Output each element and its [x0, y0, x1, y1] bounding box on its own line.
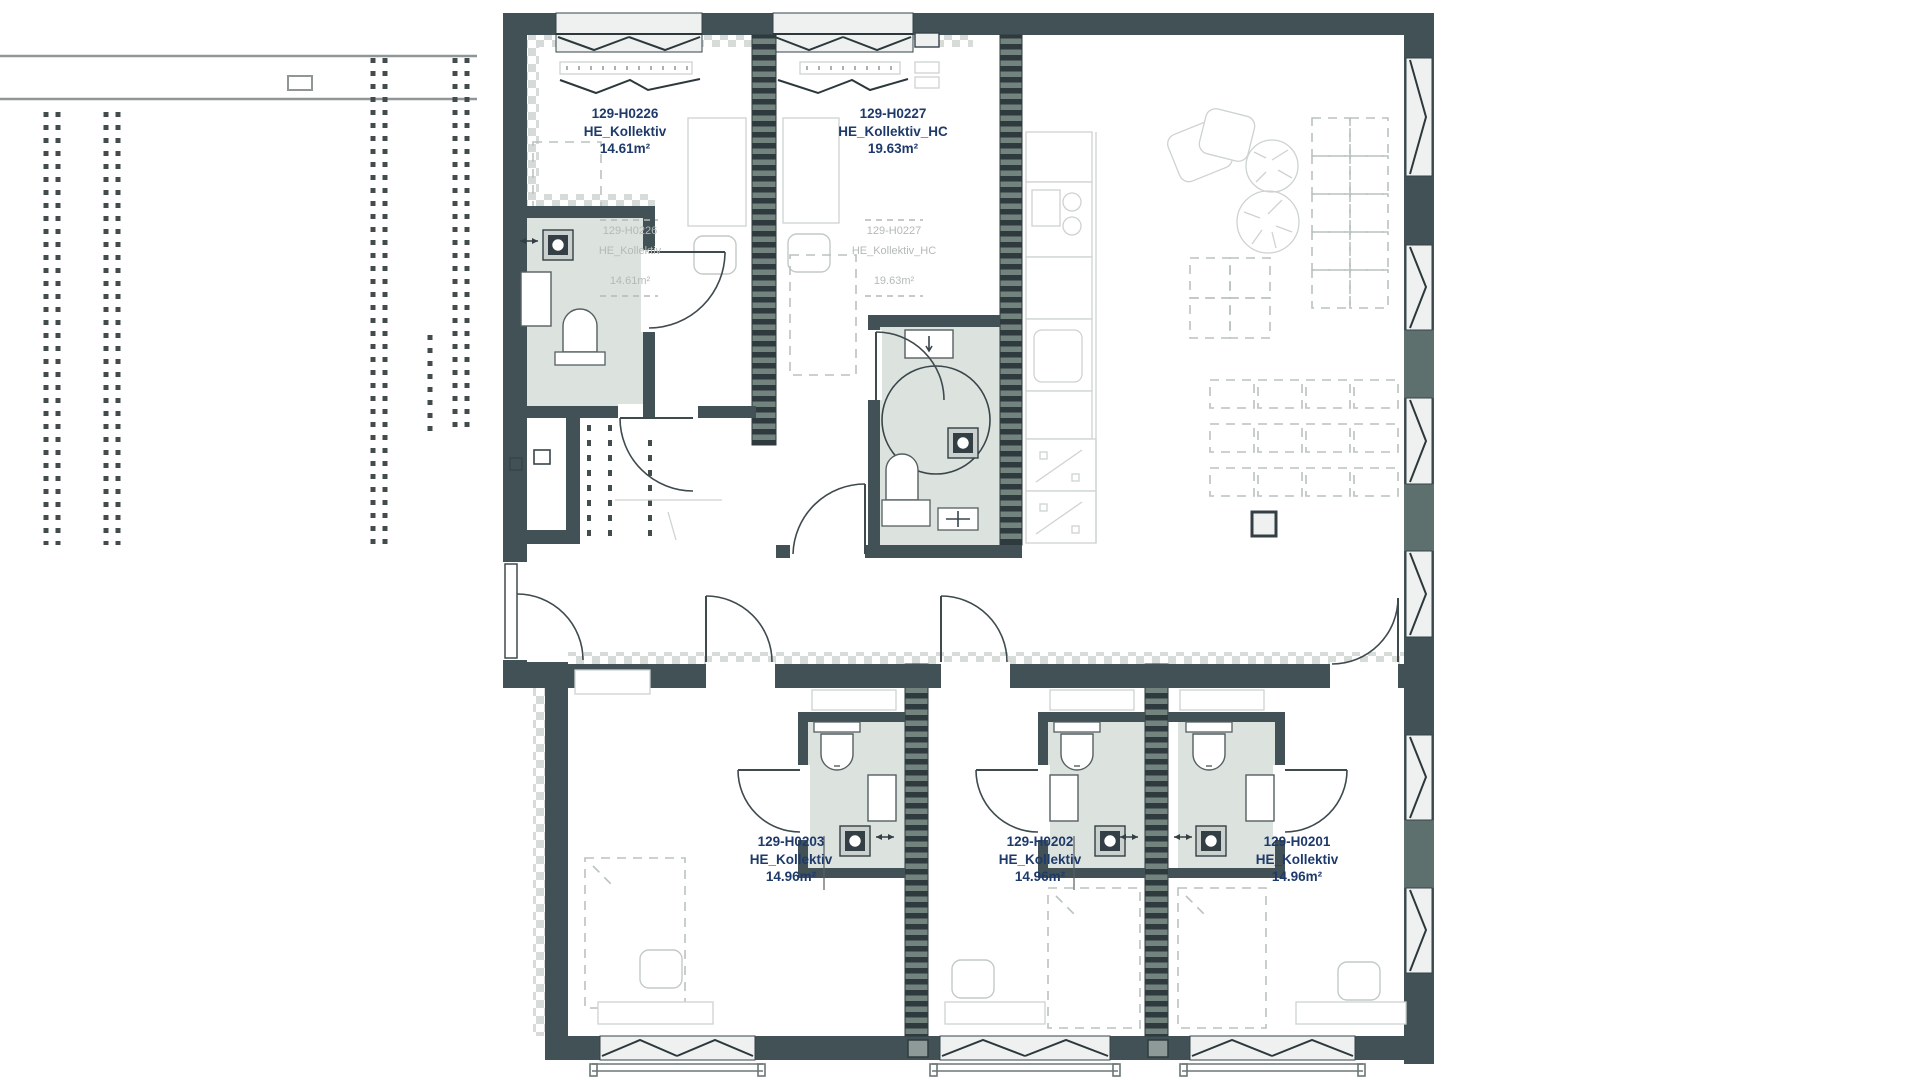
partition-wall	[752, 35, 776, 445]
washbasin-icon	[521, 272, 551, 326]
desk-outline	[945, 1002, 1045, 1024]
room-area: 14.96m²	[766, 869, 817, 884]
wall-pier	[1404, 820, 1434, 888]
room-type: HE_Kollektiv_HC	[838, 124, 948, 139]
window	[773, 13, 913, 52]
desk-outline	[1296, 1002, 1406, 1024]
room-area: 14.61m²	[600, 141, 651, 156]
desk-outline	[598, 1002, 713, 1024]
partition-wall	[905, 664, 928, 1036]
desk-outline	[688, 118, 746, 226]
chair-icon	[1338, 962, 1380, 1000]
ghost-room-area: 14.61m²	[610, 275, 651, 287]
partition-wall	[1145, 664, 1168, 1036]
room-number: 129-H0201	[1264, 834, 1331, 849]
floor-drain-icon	[948, 428, 978, 458]
window	[600, 1036, 1355, 1060]
room-type: HE_Kollektiv	[750, 852, 833, 867]
ghost-room-number: 129-H0227	[867, 225, 921, 237]
entry-door-leaf	[505, 564, 517, 658]
floor-drain-icon	[840, 826, 870, 856]
washbasin-icon	[1246, 775, 1274, 821]
room-area: 19.63m²	[868, 141, 919, 156]
shaft-box	[1148, 1040, 1168, 1057]
washbasin-icon	[868, 775, 896, 821]
floor-drain-icon	[543, 230, 573, 260]
ghost-room-type: HE_Kollektiv	[599, 245, 662, 257]
ghost-room-number: 129-H0226	[603, 225, 657, 237]
floor-drain-icon	[1196, 826, 1226, 856]
ghost-room-type: HE_Kollektiv_HC	[852, 245, 936, 257]
floor-plan-viewport: 129-H0226 HE_Kollektiv 14.61m² 129-H0227…	[0, 0, 1920, 1080]
room-type: HE_Kollektiv	[999, 852, 1082, 867]
chair-icon	[952, 960, 994, 998]
room-number: 129-H0227	[860, 106, 927, 121]
partition-wall	[1000, 35, 1022, 545]
floor-plan-canvas: 129-H0226 HE_Kollektiv 14.61m² 129-H0227…	[0, 0, 1920, 1080]
ghost-room-area: 19.63m²	[874, 275, 915, 287]
chair-icon	[640, 950, 682, 988]
shelf-outline	[915, 62, 939, 73]
room-number: 129-H0202	[1007, 834, 1074, 849]
shelf-outline	[915, 77, 939, 88]
chair-icon	[788, 234, 830, 272]
room-type: HE_Kollektiv	[584, 124, 667, 139]
shaft-box	[915, 33, 939, 47]
wall-pier	[1404, 484, 1434, 551]
column	[1252, 512, 1276, 536]
shaft-box	[908, 1040, 928, 1057]
room-area: 14.96m²	[1272, 869, 1323, 884]
wall-pier	[1404, 330, 1434, 398]
chair-icon	[694, 236, 736, 274]
washbasin-icon	[1050, 775, 1078, 821]
shower-icon	[938, 508, 978, 530]
kitchen-units	[1026, 132, 1096, 543]
room-type: HE_Kollektiv	[1256, 852, 1339, 867]
desk-outline	[783, 118, 839, 223]
room-number: 129-H0203	[758, 834, 825, 849]
room-area: 14.96m²	[1015, 869, 1066, 884]
room-number: 129-H0226	[592, 106, 659, 121]
floor-drain-icon	[1095, 826, 1125, 856]
window	[556, 13, 702, 52]
